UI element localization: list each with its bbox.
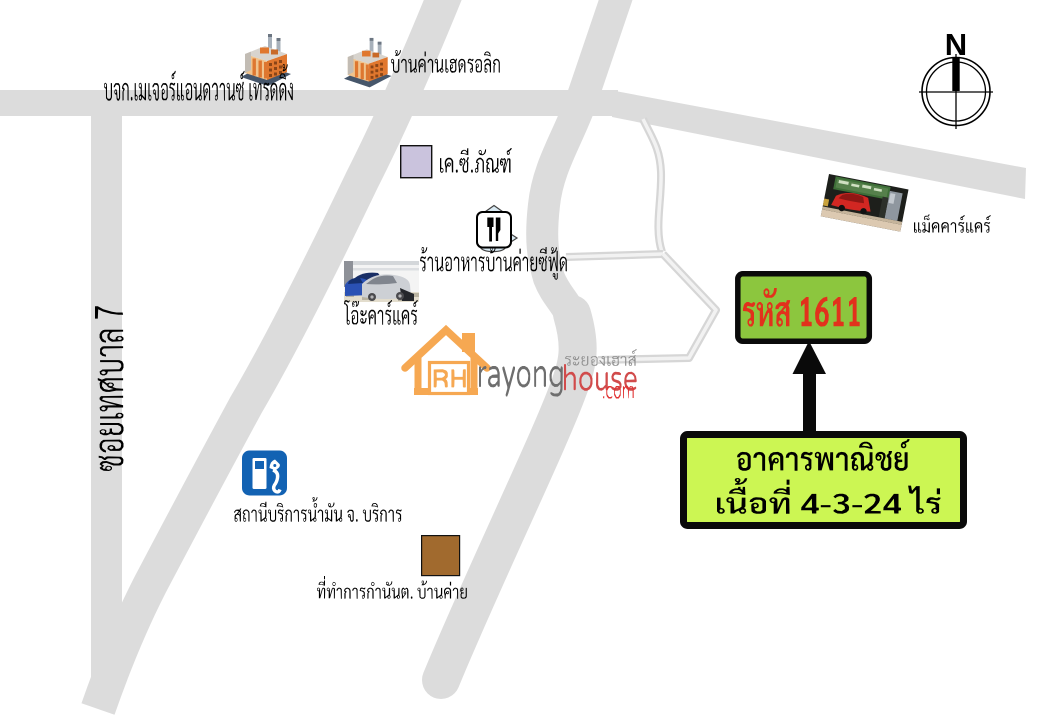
svg-text:N: N (945, 27, 967, 62)
